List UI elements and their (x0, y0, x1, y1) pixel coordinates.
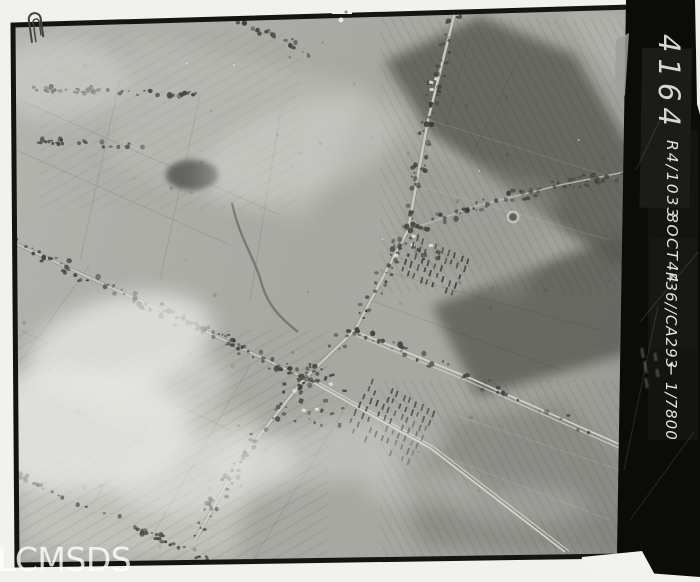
film-grain (13, 7, 635, 567)
print-number-label: 4164 (652, 34, 686, 132)
north-arrow-label: ← (662, 362, 681, 375)
camera-label: F36//CA293 (662, 272, 680, 369)
watermark-text: LCMSDS (0, 540, 131, 579)
photo-print-scan: 4164 R4/1033 8OCT44 F36//CA293 ← 1/7800 … (0, 0, 700, 582)
scale-label: 1/7800 (662, 382, 680, 441)
sortie-label: R4/1033 (663, 140, 681, 219)
data-strip: 4164 R4/1033 8OCT44 F36//CA293 ← 1/7800 (615, 0, 700, 577)
aerial-photo (0, 0, 700, 582)
